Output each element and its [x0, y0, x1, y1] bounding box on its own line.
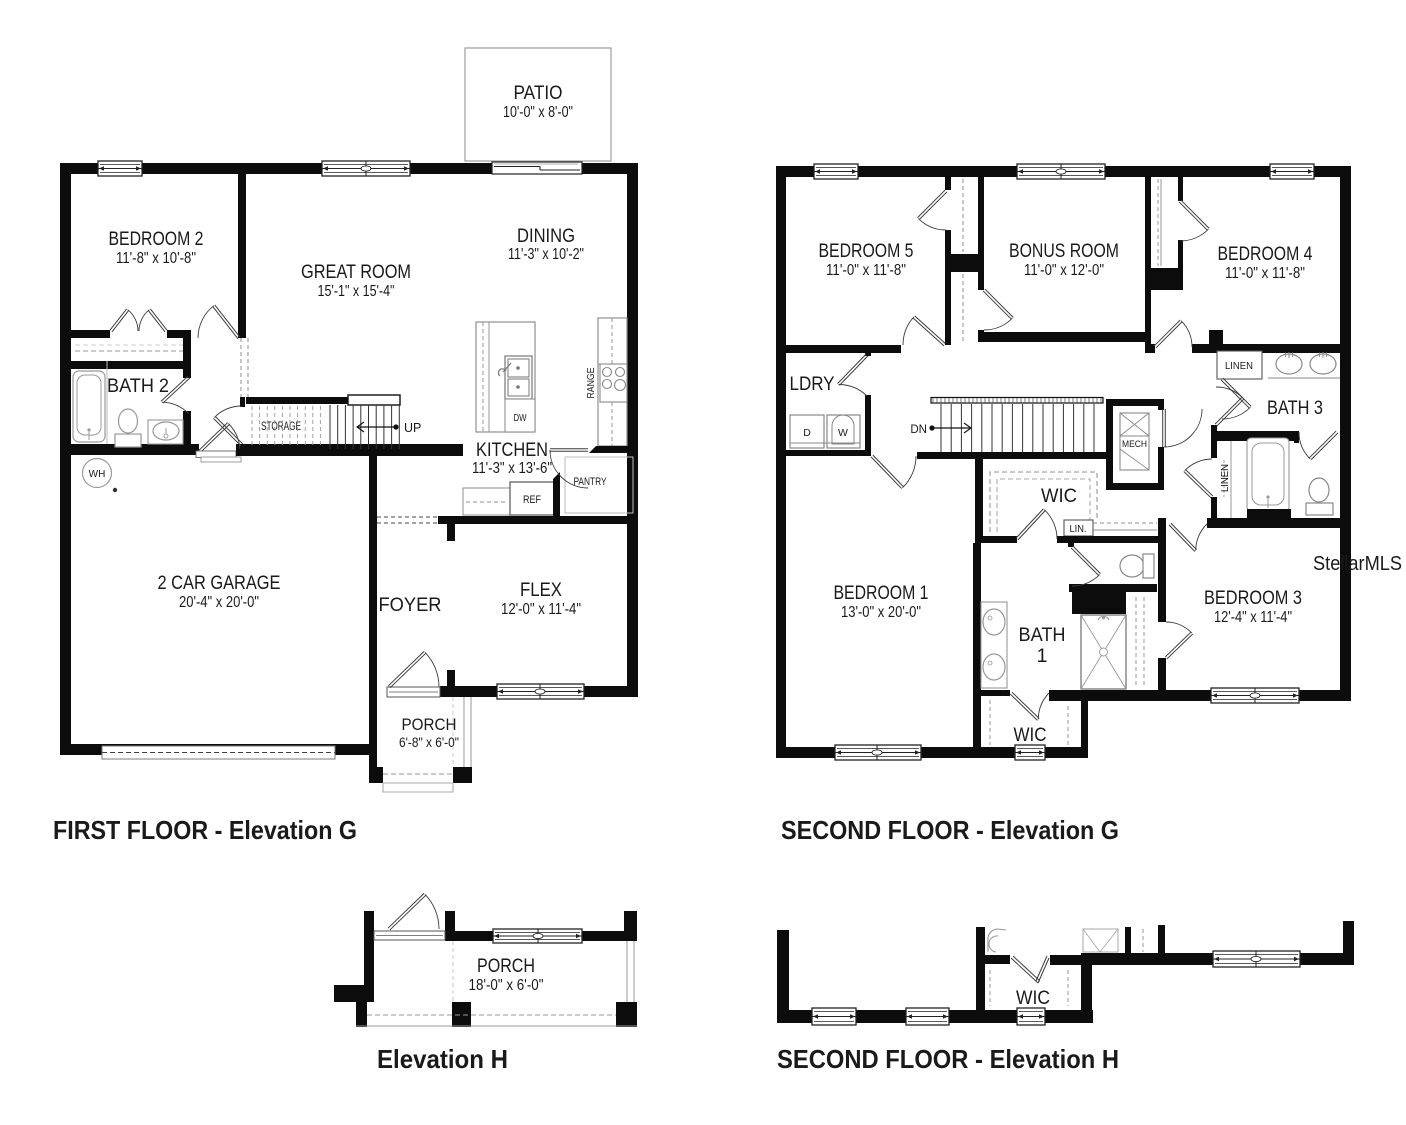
svg-text:LINEN: LINEN: [1225, 361, 1253, 372]
svg-text:BATH 2: BATH 2: [107, 375, 169, 397]
svg-text:StellarMLS: StellarMLS: [1313, 553, 1402, 575]
svg-text:KITCHEN: KITCHEN: [476, 439, 548, 461]
svg-text:11'-3" x 13'-6": 11'-3" x 13'-6": [472, 460, 552, 477]
svg-text:PANTRY: PANTRY: [574, 476, 607, 488]
svg-text:11'-0" x 11'-8": 11'-0" x 11'-8": [1225, 265, 1305, 282]
svg-text:BATH 3: BATH 3: [1267, 397, 1323, 419]
svg-text:BEDROOM 4: BEDROOM 4: [1218, 243, 1313, 265]
svg-text:DN: DN: [910, 424, 927, 436]
svg-text:W: W: [838, 427, 848, 439]
svg-text:RANGE: RANGE: [585, 368, 597, 399]
svg-text:11'-0" x 11'-8": 11'-0" x 11'-8": [826, 262, 906, 279]
svg-text:BEDROOM 1: BEDROOM 1: [834, 582, 929, 604]
svg-text:12'-0" x 11'-4": 12'-0" x 11'-4": [501, 601, 581, 618]
svg-text:11'-0" x 12'-0": 11'-0" x 12'-0": [1024, 262, 1104, 279]
svg-text:LINEN: LINEN: [1220, 464, 1231, 492]
svg-text:GREAT ROOM: GREAT ROOM: [301, 261, 411, 283]
svg-text:BEDROOM 2: BEDROOM 2: [109, 228, 204, 250]
svg-text:2 CAR GARAGE: 2 CAR GARAGE: [158, 572, 281, 594]
svg-text:DINING: DINING: [517, 225, 575, 247]
svg-text:SECOND FLOOR - Elevation H: SECOND FLOOR - Elevation H: [777, 1044, 1119, 1074]
svg-text:WIC: WIC: [1041, 485, 1077, 507]
svg-text:BEDROOM 5: BEDROOM 5: [819, 240, 914, 262]
svg-text:PATIO: PATIO: [514, 83, 563, 104]
svg-text:1: 1: [1037, 645, 1048, 667]
svg-text:Elevation H: Elevation H: [377, 1044, 508, 1074]
svg-text:FOYER: FOYER: [379, 594, 442, 616]
svg-text:LIN.: LIN.: [1070, 524, 1087, 535]
svg-text:12'-4" x 11'-4": 12'-4" x 11'-4": [1214, 609, 1292, 626]
svg-text:BEDROOM 3: BEDROOM 3: [1204, 587, 1302, 609]
svg-text:11'-3" x 10'-2": 11'-3" x 10'-2": [508, 246, 584, 263]
svg-text:D: D: [803, 427, 811, 439]
svg-text:PORCH: PORCH: [477, 955, 535, 977]
svg-text:FLEX: FLEX: [520, 579, 562, 601]
svg-text:15'-1" x 15'-4": 15'-1" x 15'-4": [318, 283, 395, 300]
svg-text:13'-0" x 20'-0": 13'-0" x 20'-0": [841, 604, 921, 621]
svg-text:SECOND FLOOR - Elevation G: SECOND FLOOR - Elevation G: [781, 815, 1119, 845]
svg-text:BATH: BATH: [1019, 624, 1066, 646]
svg-text:FIRST FLOOR - Elevation G: FIRST FLOOR - Elevation G: [53, 815, 357, 845]
svg-text:LDRY: LDRY: [790, 373, 835, 395]
svg-text:11'-8" x 10'-8": 11'-8" x 10'-8": [116, 250, 196, 267]
svg-text:18'-0" x 6'-0": 18'-0" x 6'-0": [469, 977, 544, 994]
svg-text:DW: DW: [514, 412, 527, 424]
svg-text:REF: REF: [523, 494, 541, 506]
svg-text:WIC: WIC: [1014, 724, 1047, 746]
svg-text:WIC: WIC: [1016, 987, 1050, 1009]
svg-text:UP: UP: [404, 421, 421, 435]
svg-text:20'-4" x 20'-0": 20'-4" x 20'-0": [179, 594, 259, 611]
svg-text:MECH: MECH: [1122, 439, 1147, 450]
svg-text:6'-8" x 6'-0": 6'-8" x 6'-0": [399, 735, 459, 750]
svg-text:WH: WH: [89, 469, 106, 480]
svg-text:PORCH: PORCH: [402, 716, 457, 734]
svg-text:10'-0" x 8'-0": 10'-0" x 8'-0": [503, 104, 573, 121]
svg-text:BONUS ROOM: BONUS ROOM: [1009, 240, 1119, 262]
